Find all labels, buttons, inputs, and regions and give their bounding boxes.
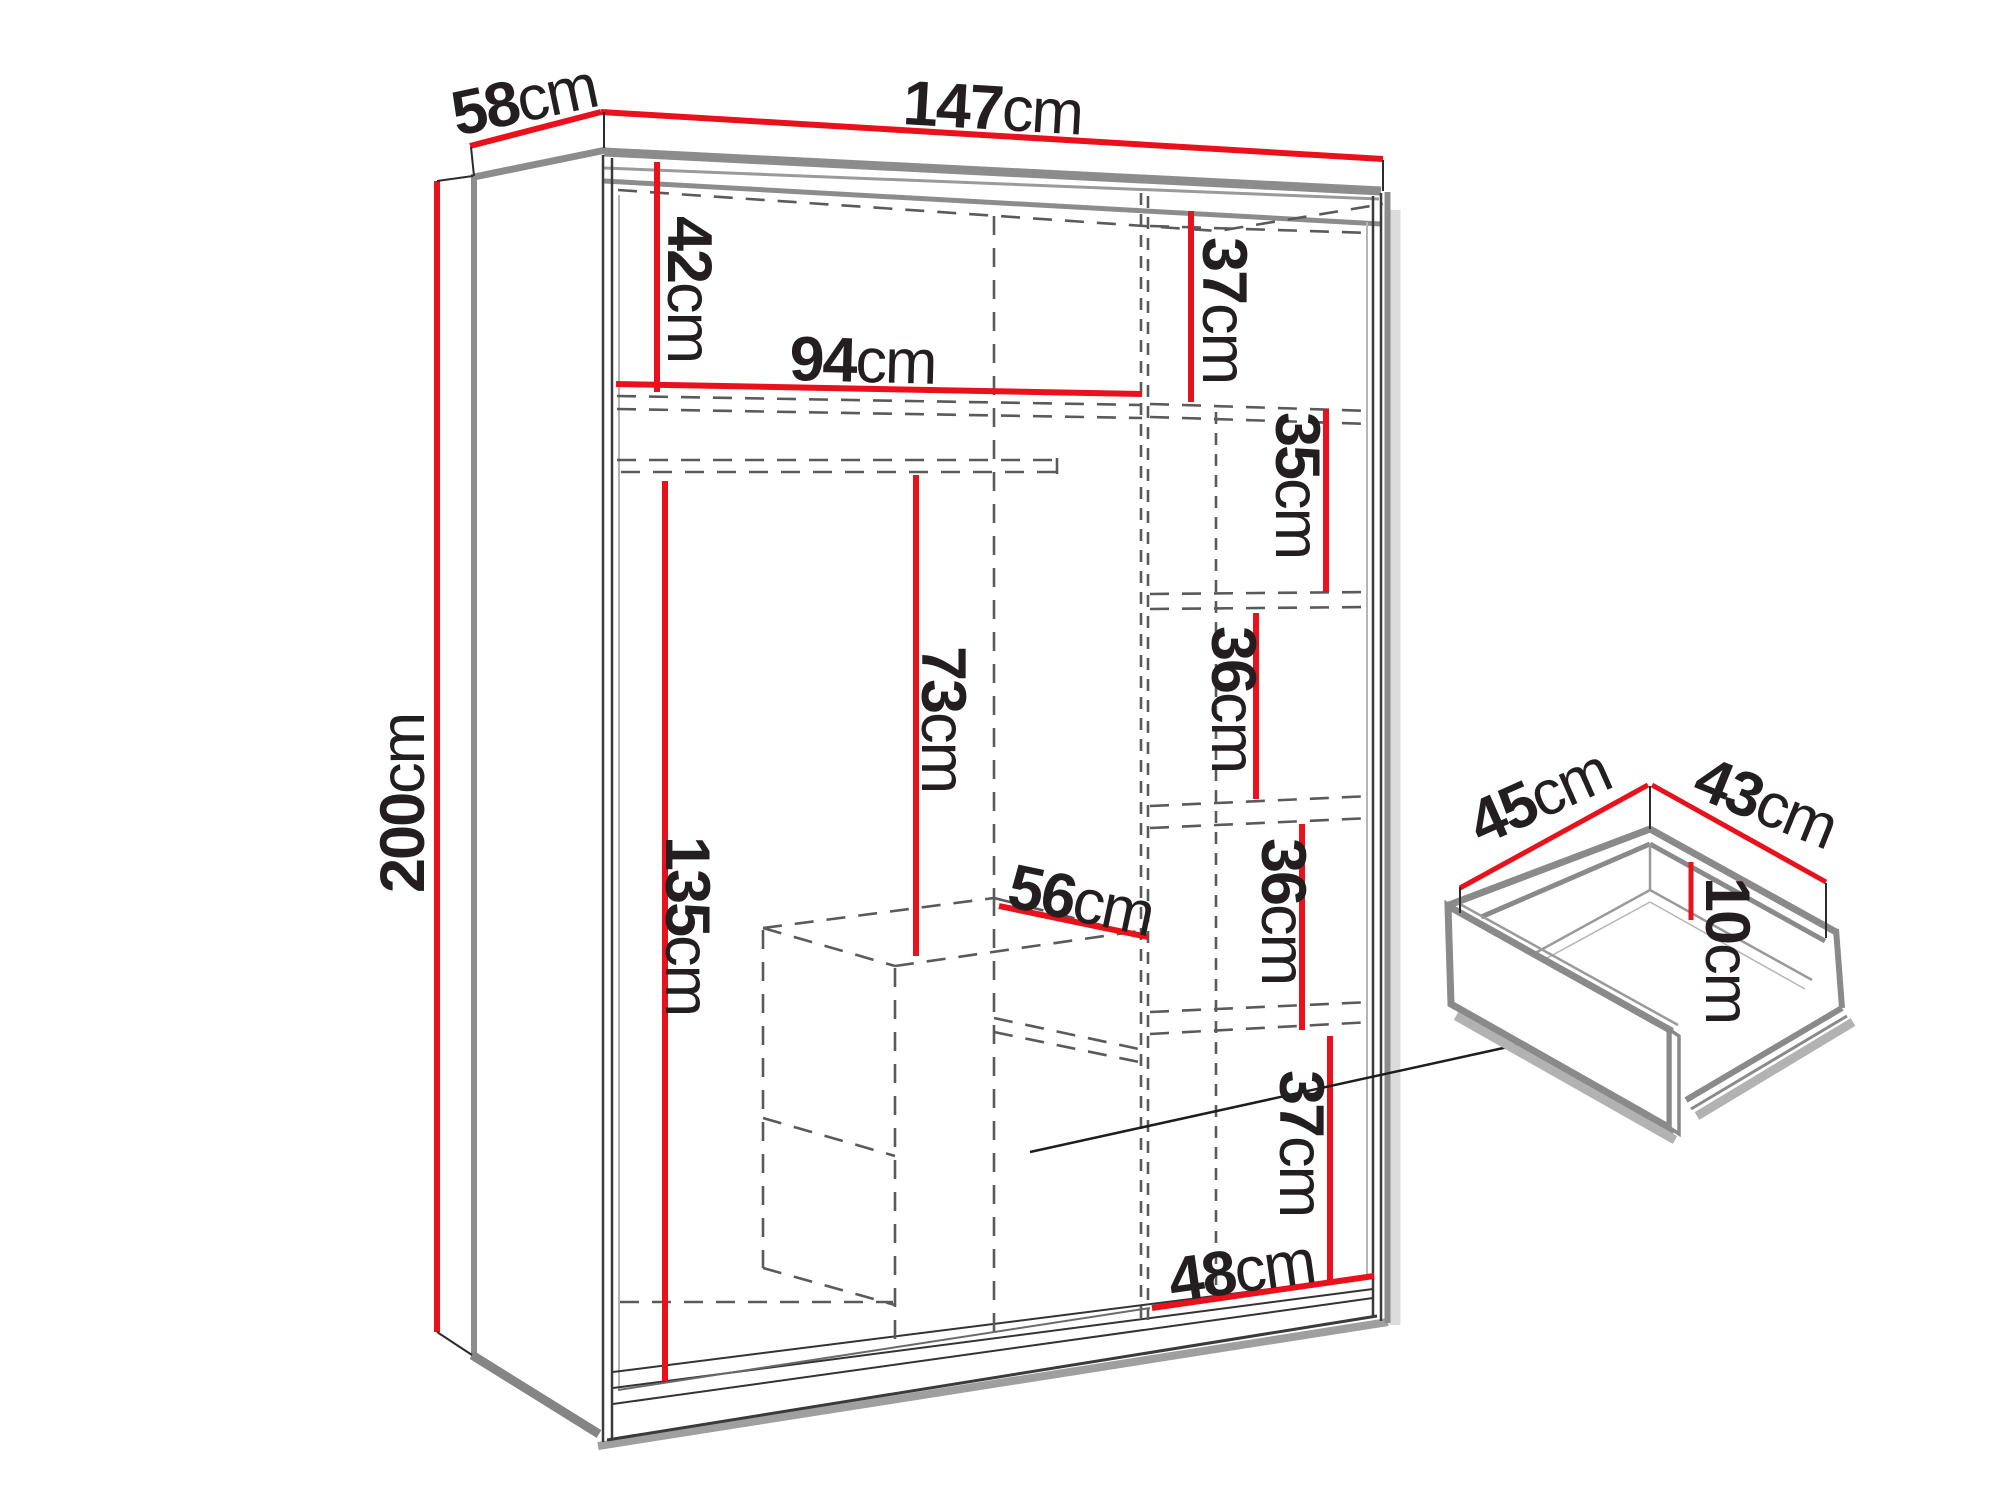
svg-text:36cm: 36cm xyxy=(1248,838,1318,984)
svg-text:58cm: 58cm xyxy=(445,51,602,150)
svg-text:200cm: 200cm xyxy=(368,714,438,893)
svg-text:42cm: 42cm xyxy=(654,216,724,362)
svg-text:35cm: 35cm xyxy=(1262,412,1332,558)
svg-text:73cm: 73cm xyxy=(908,646,978,792)
svg-text:36cm: 36cm xyxy=(1198,626,1268,772)
svg-text:135cm: 135cm xyxy=(652,836,722,1015)
svg-text:37cm: 37cm xyxy=(1189,237,1259,383)
svg-text:147cm: 147cm xyxy=(901,68,1084,148)
svg-text:10cm: 10cm xyxy=(1692,877,1762,1023)
svg-text:37cm: 37cm xyxy=(1266,1070,1336,1216)
svg-text:94cm: 94cm xyxy=(789,324,937,398)
svg-text:48cm: 48cm xyxy=(1164,1226,1318,1316)
svg-text:56cm: 56cm xyxy=(1002,851,1159,950)
svg-text:43cm: 43cm xyxy=(1685,743,1847,863)
svg-text:45cm: 45cm xyxy=(1458,735,1620,858)
